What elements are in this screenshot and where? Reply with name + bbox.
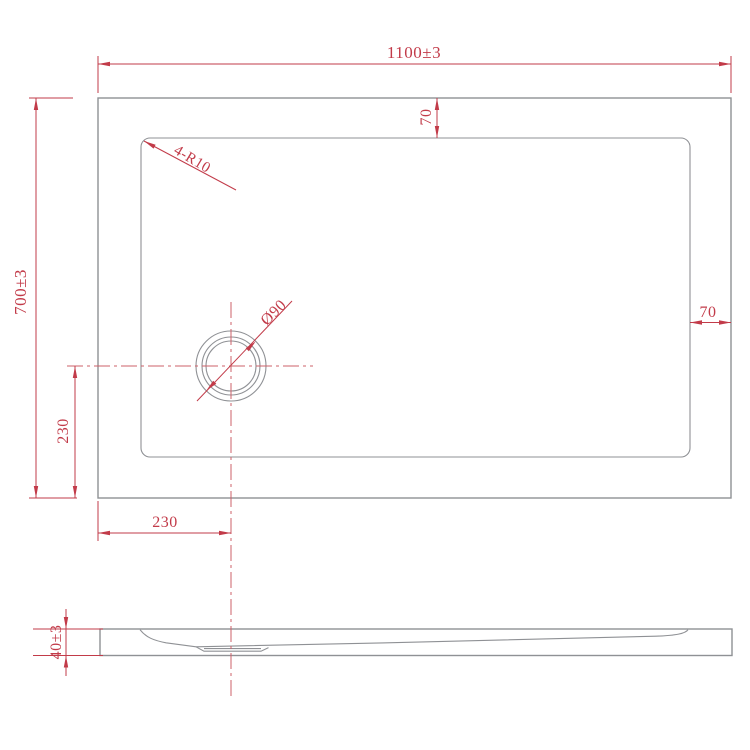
technical-drawing-page: 1100±3 700±3 70 70 230 230: [0, 0, 750, 750]
drain-from-left-label: 230: [152, 514, 178, 531]
overall-width-label: 1100±3: [387, 43, 441, 62]
top-rim-label: 70: [418, 109, 435, 126]
drain-diameter-label: Ø90: [258, 297, 291, 330]
arrowhead-icon: [719, 320, 731, 324]
overall-height-label: 700±3: [11, 269, 30, 315]
arrowhead-icon: [34, 486, 38, 498]
right-rim-label: 70: [700, 304, 717, 321]
arrowhead-icon: [98, 62, 110, 66]
arrowhead-icon: [34, 98, 38, 110]
arrowhead-icon: [719, 62, 731, 66]
dim-overall-width: 1100±3: [98, 43, 731, 93]
arrowhead-icon: [144, 141, 156, 149]
dim-drain-diameter: Ø90: [197, 297, 292, 401]
arrowhead-icon: [73, 366, 77, 378]
section-left-wall-profile: [140, 630, 196, 647]
drain-from-bottom-label: 230: [55, 418, 72, 444]
section-view: [100, 629, 732, 656]
arrowhead-icon: [435, 126, 439, 138]
arrowhead-icon: [98, 531, 110, 535]
dim-thickness: 40±3: [33, 609, 103, 676]
technical-drawing-canvas: 1100±3 700±3 70 70 230 230: [0, 0, 750, 750]
thickness-label: 40±3: [48, 625, 65, 660]
section-floor-slope-profile: [196, 630, 688, 647]
arrowhead-icon: [219, 531, 231, 535]
dim-right-rim: 70: [690, 304, 731, 325]
dim-top-rim: 70: [418, 98, 439, 138]
tray-basin-outline: [141, 138, 690, 457]
corner-radius-label: 4-R10: [171, 142, 214, 176]
arrowhead-icon: [73, 486, 77, 498]
dim-drain-from-bottom: 230: [55, 366, 77, 498]
dim-drain-from-left: 230: [98, 501, 231, 541]
dim-corner-radius: 4-R10: [144, 141, 236, 190]
arrowhead-icon: [435, 98, 439, 110]
